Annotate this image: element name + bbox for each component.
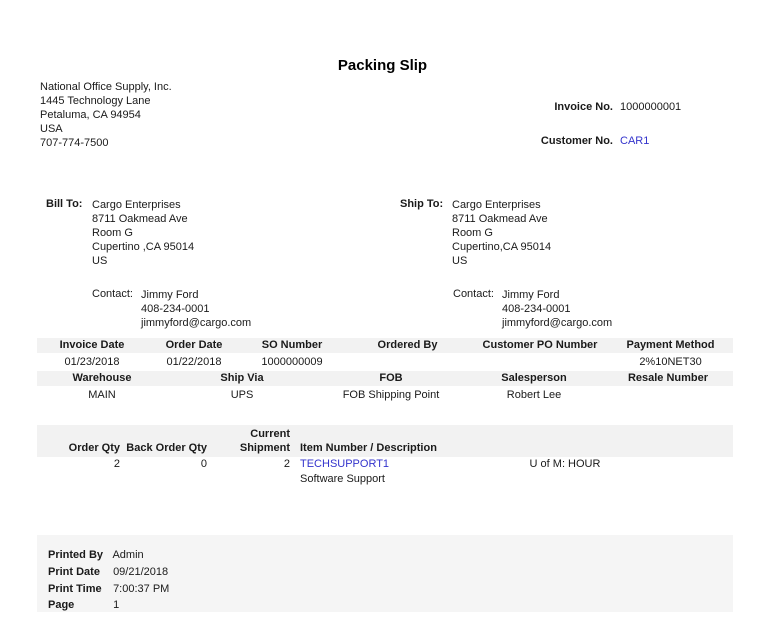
value-warehouse: MAIN xyxy=(37,388,167,403)
bill-to-contact-phone: 408-234-0001 xyxy=(141,302,251,316)
header-back-order-qty: Back Order Qty xyxy=(120,441,207,457)
header-current-shipment-line2: Shipment xyxy=(207,441,290,455)
bill-to-contact-email: jimmyford@cargo.com xyxy=(141,316,251,330)
customer-no-link[interactable]: CAR1 xyxy=(620,135,649,147)
print-date-value: 09/21/2018 xyxy=(113,566,168,578)
value-resale-number xyxy=(603,388,733,403)
ship-to-line: US xyxy=(452,254,551,268)
printed-by-value: Admin xyxy=(112,549,143,561)
company-address-block: National Office Supply, Inc. 1445 Techno… xyxy=(40,80,172,150)
bill-to-line: US xyxy=(92,254,194,268)
header-salesperson: Salesperson xyxy=(465,371,603,386)
packing-slip-document: Packing Slip National Office Supply, Inc… xyxy=(0,0,765,617)
print-time-label: Print Time xyxy=(48,583,110,596)
ship-to-address: Cargo Enterprises 8711 Oakmead Ave Room … xyxy=(452,198,551,268)
value-fob: FOB Shipping Point xyxy=(317,388,465,403)
value-order-date: 01/22/2018 xyxy=(147,355,241,370)
ship-to-label: Ship To: xyxy=(400,198,443,210)
company-country: USA xyxy=(40,122,172,136)
bill-to-contact-name: Jimmy Ford xyxy=(141,288,251,302)
bill-to-line: 8711 Oakmead Ave xyxy=(92,212,194,226)
line-items-header: Order Qty Back Order Qty Current Shipmen… xyxy=(37,425,733,457)
header-current-shipment: Current Shipment xyxy=(207,427,290,457)
print-date-row: Print Date 09/21/2018 xyxy=(48,566,168,579)
value-so-number: 1000000009 xyxy=(241,355,343,370)
ship-to-line: 8711 Oakmead Ave xyxy=(452,212,551,226)
print-info-panel: Printed By Admin Print Date 09/21/2018 P… xyxy=(37,535,733,612)
header-customer-po-number: Customer PO Number xyxy=(472,338,608,353)
header-item-number-description: Item Number / Description xyxy=(290,441,490,457)
bill-to-label: Bill To: xyxy=(46,198,82,210)
company-name: National Office Supply, Inc. xyxy=(40,80,172,94)
page-title: Packing Slip xyxy=(0,57,765,74)
printed-by-label: Printed By xyxy=(48,549,110,562)
invoice-no-value: 1000000001 xyxy=(620,101,681,113)
value-ship-via: UPS xyxy=(167,388,317,403)
order-info-value-row1: 01/23/2018 01/22/2018 1000000009 2%10NET… xyxy=(37,355,733,370)
value-salesperson: Robert Lee xyxy=(465,388,603,403)
ship-to-contact-block: Jimmy Ford 408-234-0001 jimmyford@cargo.… xyxy=(502,288,612,330)
print-time-value: 7:00:37 PM xyxy=(113,583,169,595)
bill-to-line: Cupertino ,CA 95014 xyxy=(92,240,194,254)
order-info-value-row2: MAIN UPS FOB Shipping Point Robert Lee xyxy=(37,388,733,403)
print-time-row: Print Time 7:00:37 PM xyxy=(48,583,169,596)
header-ordered-by: Ordered By xyxy=(343,338,472,353)
company-phone: 707-774-7500 xyxy=(40,136,172,150)
order-info-header-row1: Invoice Date Order Date SO Number Ordere… xyxy=(37,338,733,353)
item-number-link[interactable]: TECHSUPPORT1 xyxy=(300,458,389,470)
cell-back-order-qty: 0 xyxy=(120,457,207,471)
ship-to-contact-name: Jimmy Ford xyxy=(502,288,612,302)
value-payment-method: 2%10NET30 xyxy=(608,355,733,370)
customer-no-label: Customer No. xyxy=(400,135,613,147)
ship-to-contact-email: jimmyford@cargo.com xyxy=(502,316,612,330)
ship-to-contact-phone: 408-234-0001 xyxy=(502,302,612,316)
ship-to-contact-label: Contact: xyxy=(453,288,494,300)
ship-to-line: Cupertino,CA 95014 xyxy=(452,240,551,254)
print-date-label: Print Date xyxy=(48,566,110,579)
invoice-no-label: Invoice No. xyxy=(400,101,613,113)
bill-to-contact-block: Jimmy Ford 408-234-0001 jimmyford@cargo.… xyxy=(141,288,251,330)
header-current-shipment-line1: Current xyxy=(207,427,290,441)
cell-order-qty: 2 xyxy=(37,457,120,471)
cell-unit-of-measure: U of M: HOUR xyxy=(490,457,640,471)
line-item-row: 2 0 2 TECHSUPPORT1 U of M: HOUR xyxy=(37,457,733,471)
header-payment-method: Payment Method xyxy=(608,338,733,353)
bill-to-address: Cargo Enterprises 8711 Oakmead Ave Room … xyxy=(92,198,194,268)
company-address-line2: Petaluma, CA 94954 xyxy=(40,108,172,122)
order-info-header-row2: Warehouse Ship Via FOB Salesperson Resal… xyxy=(37,371,733,386)
value-ordered-by xyxy=(343,355,472,370)
page-number-value: 1 xyxy=(113,599,119,611)
value-customer-po-number xyxy=(472,355,608,370)
printed-by-row: Printed By Admin xyxy=(48,549,144,562)
header-warehouse: Warehouse xyxy=(37,371,167,386)
header-so-number: SO Number xyxy=(241,338,343,353)
ship-to-line: Cargo Enterprises xyxy=(452,198,551,212)
header-resale-number: Resale Number xyxy=(603,371,733,386)
bill-to-line: Room G xyxy=(92,226,194,240)
page-number-label: Page xyxy=(48,599,110,612)
bill-to-line: Cargo Enterprises xyxy=(92,198,194,212)
header-order-date: Order Date xyxy=(147,338,241,353)
ship-to-line: Room G xyxy=(452,226,551,240)
header-fob: FOB xyxy=(317,371,465,386)
header-order-qty: Order Qty xyxy=(37,441,120,457)
item-description: Software Support xyxy=(300,472,385,486)
company-address-line1: 1445 Technology Lane xyxy=(40,94,172,108)
page-number-row: Page 1 xyxy=(48,599,119,612)
bill-to-contact-label: Contact: xyxy=(92,288,133,300)
header-ship-via: Ship Via xyxy=(167,371,317,386)
cell-current-shipment: 2 xyxy=(207,457,290,471)
value-invoice-date: 01/23/2018 xyxy=(37,355,147,370)
header-invoice-date: Invoice Date xyxy=(37,338,147,353)
